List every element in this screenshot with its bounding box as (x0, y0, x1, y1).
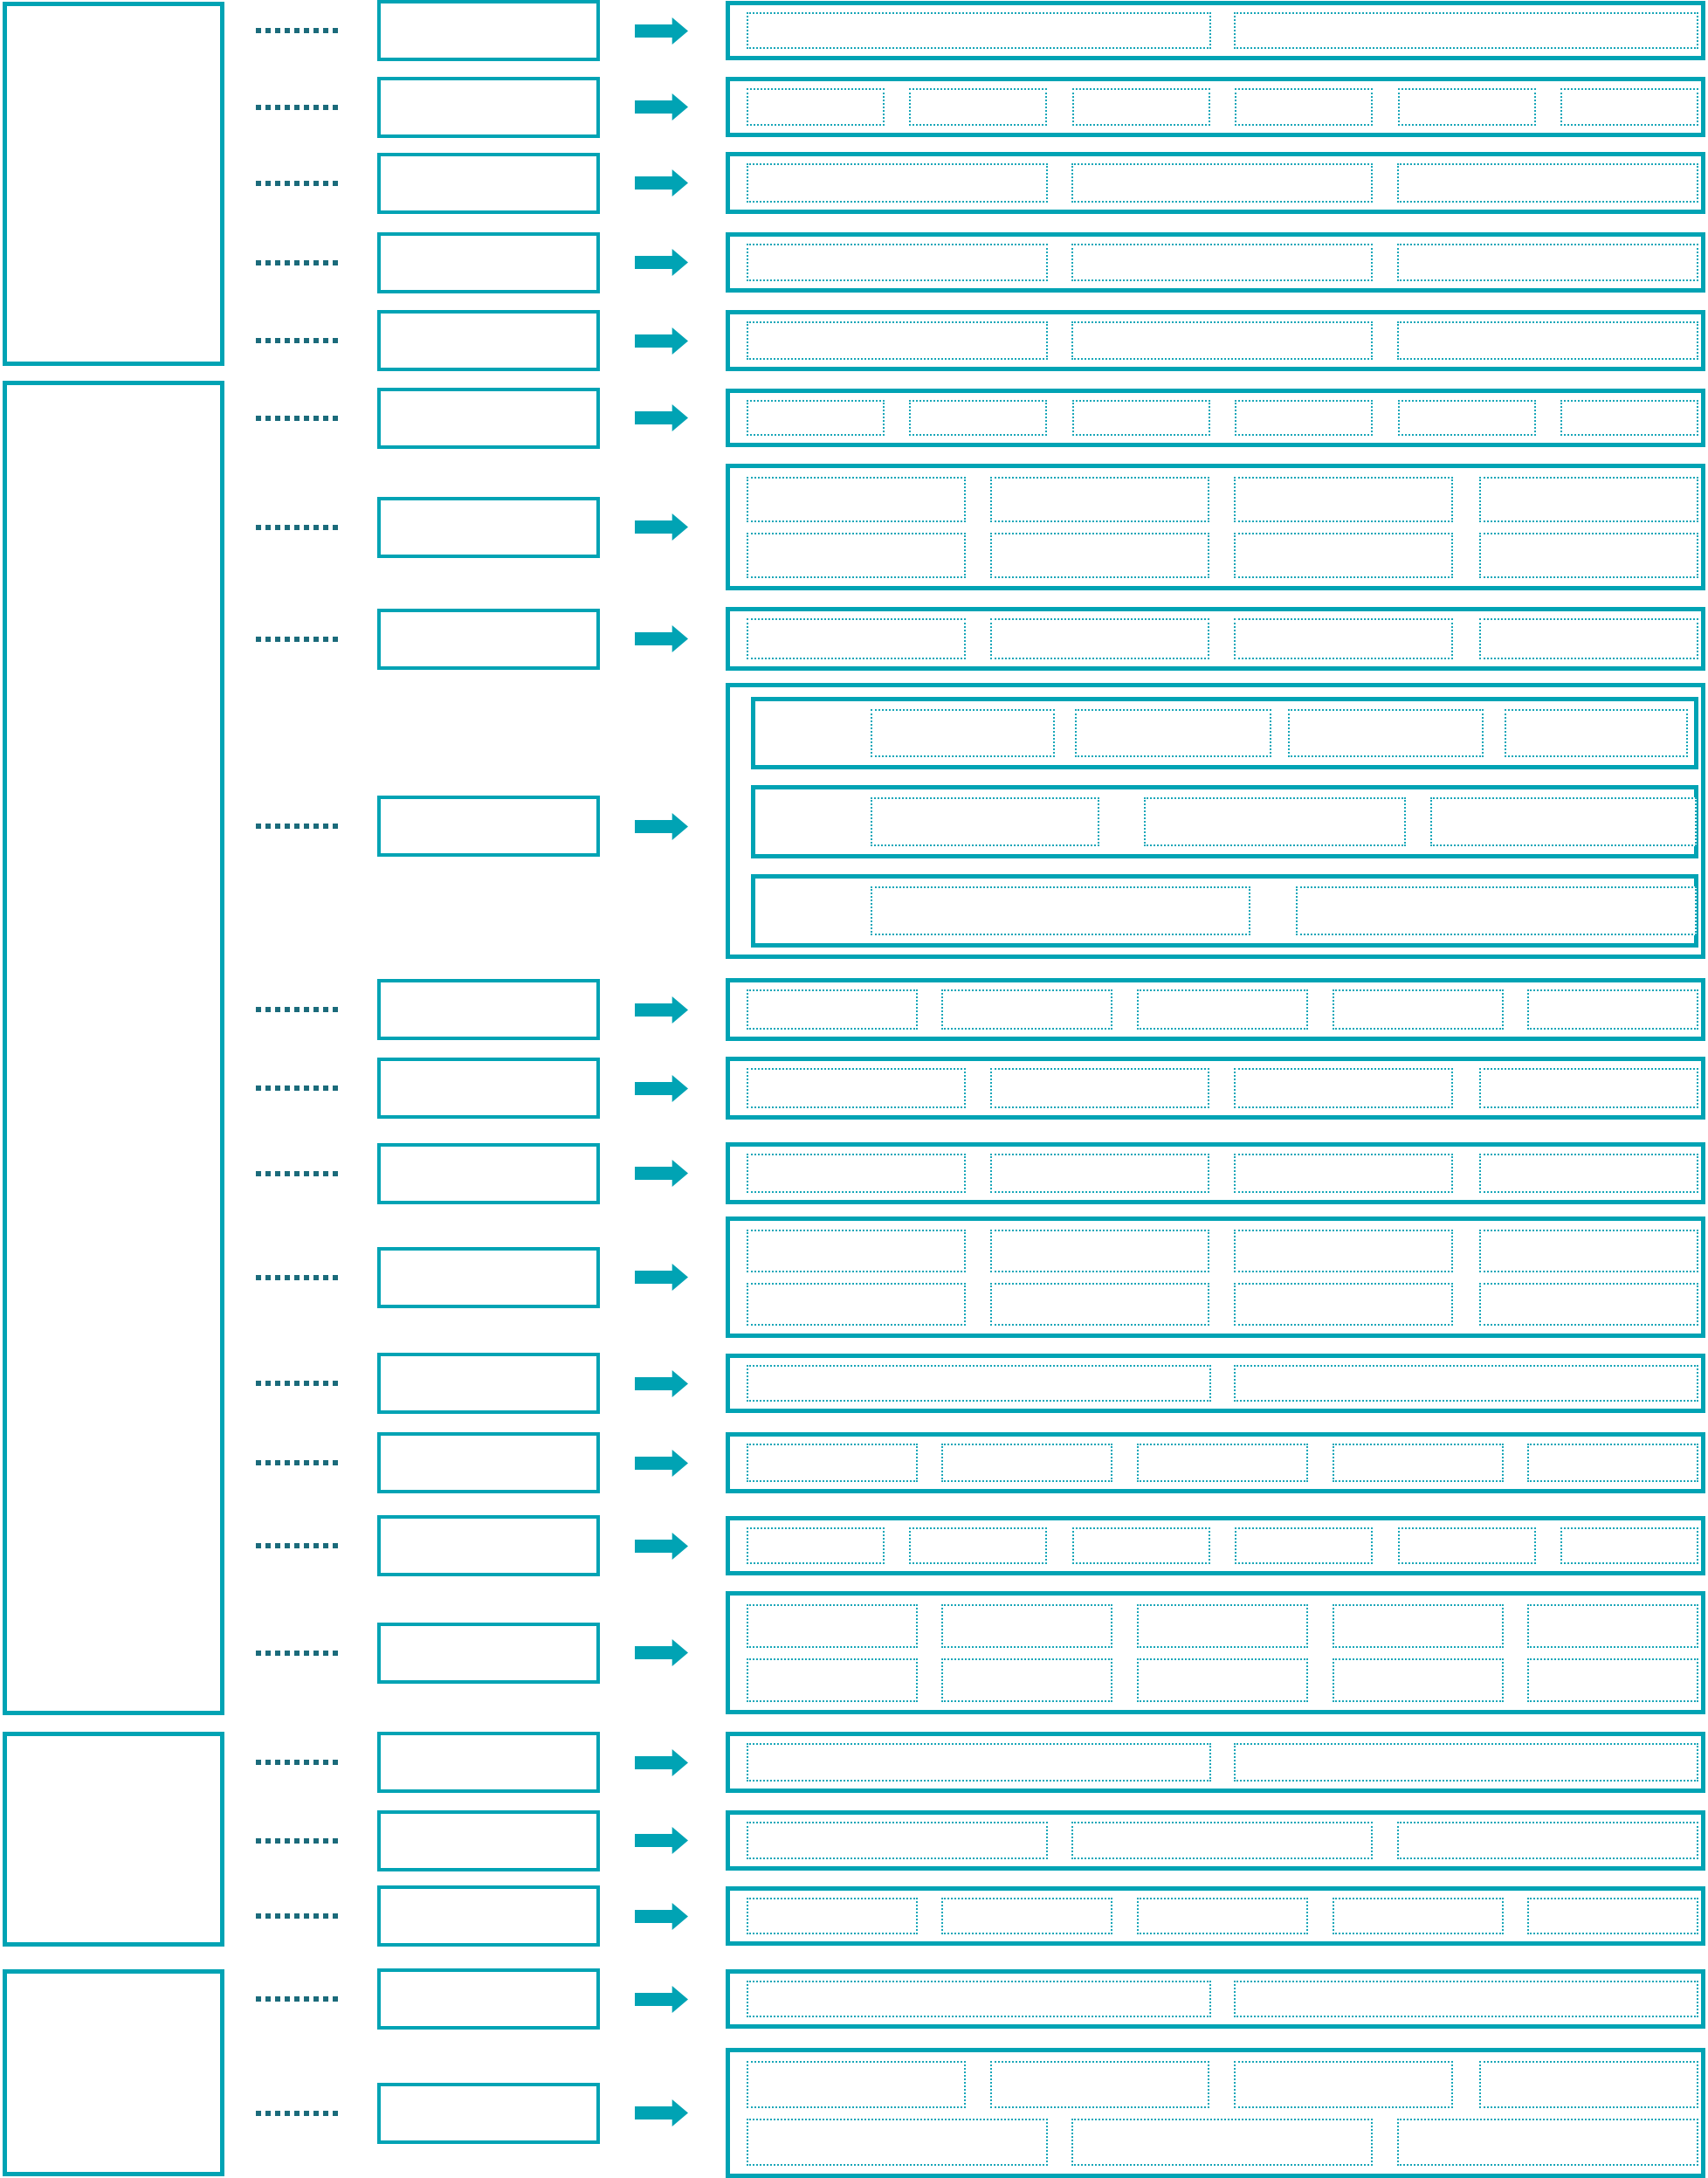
item-placeholder-box (1234, 477, 1453, 522)
arrow-right-icon (635, 1903, 688, 1930)
item-placeholder-box (1479, 1068, 1698, 1108)
dashed-connector (256, 260, 338, 265)
label-box (377, 1432, 600, 1493)
item-placeholder-box (1397, 163, 1698, 203)
dashed-connector (256, 1460, 338, 1465)
item-placeholder-box (1333, 1658, 1504, 1702)
item-placeholder-box (1234, 1283, 1453, 1326)
item-placeholder-box (990, 477, 1209, 522)
label-box (377, 1810, 600, 1871)
item-placeholder-box (990, 533, 1209, 578)
item-placeholder-box (747, 400, 885, 436)
item-placeholder-box (747, 618, 966, 659)
item-placeholder-box (747, 163, 1048, 203)
item-placeholder-box (1479, 533, 1698, 578)
item-placeholder-box (909, 1527, 1047, 1564)
label-box (377, 1247, 600, 1308)
item-placeholder-box (990, 618, 1209, 659)
item-placeholder-box (1071, 1822, 1373, 1859)
arrow-right-icon (635, 169, 688, 196)
item-placeholder-box (1072, 1527, 1210, 1564)
arrow-right-icon (635, 93, 688, 121)
arrow-right-icon (635, 513, 688, 541)
item-placeholder-box (747, 1981, 1211, 2017)
label-box (377, 77, 600, 138)
item-placeholder-box (941, 989, 1112, 1030)
item-placeholder-box (1234, 618, 1453, 659)
left-category-box (3, 1969, 224, 2176)
item-placeholder-box (1234, 1743, 1698, 1782)
item-placeholder-box (1234, 1365, 1698, 1402)
item-placeholder-box (990, 1230, 1209, 1272)
arrow-right-icon (635, 17, 688, 45)
left-category-box (3, 2, 224, 366)
item-placeholder-box (1397, 2119, 1698, 2166)
item-placeholder-box (1234, 1981, 1698, 2017)
item-placeholder-box (1234, 1230, 1453, 1272)
item-placeholder-box (941, 1658, 1112, 1702)
item-placeholder-box (747, 1527, 885, 1564)
arrow-right-icon (635, 1264, 688, 1291)
dashed-connector (256, 1996, 338, 2002)
dashed-connector (256, 181, 338, 186)
arrow-right-icon (635, 1533, 688, 1560)
item-placeholder-box (747, 244, 1048, 281)
label-box (377, 1515, 600, 1576)
item-placeholder-box (747, 1154, 966, 1193)
label-box (377, 1623, 600, 1684)
arrow-right-icon (635, 1370, 688, 1397)
item-placeholder-box (1560, 400, 1698, 436)
item-placeholder-box (871, 886, 1250, 935)
item-placeholder-box (1234, 1068, 1453, 1108)
arrow-right-icon (635, 1986, 688, 2013)
arrow-right-icon (635, 1075, 688, 1102)
item-placeholder-box (1235, 1527, 1373, 1564)
item-placeholder-box (747, 1283, 966, 1326)
item-placeholder-box (1333, 1444, 1504, 1482)
item-placeholder-box (1479, 477, 1698, 522)
item-placeholder-box (1333, 1604, 1504, 1648)
item-placeholder-box (747, 1230, 966, 1272)
label-box (377, 1885, 600, 1947)
item-placeholder-box (1137, 1898, 1308, 1934)
label-box (377, 1732, 600, 1793)
item-placeholder-box (1479, 1283, 1698, 1326)
item-placeholder-box (747, 88, 885, 126)
label-box (377, 310, 600, 371)
item-placeholder-box (747, 477, 966, 522)
item-placeholder-box (1137, 989, 1308, 1030)
item-placeholder-box (747, 533, 966, 578)
item-placeholder-box (747, 989, 918, 1030)
label-box (377, 497, 600, 558)
item-placeholder-box (1137, 1604, 1308, 1648)
dashed-connector (256, 416, 338, 421)
item-placeholder-box (909, 88, 1047, 126)
item-placeholder-box (1479, 618, 1698, 659)
item-placeholder-box (1397, 244, 1698, 281)
item-placeholder-box (1479, 1230, 1698, 1272)
dashed-connector (256, 1760, 338, 1765)
label-box (377, 153, 600, 214)
item-placeholder-box (990, 1154, 1209, 1193)
item-placeholder-box (747, 1743, 1211, 1782)
item-placeholder-box (990, 1068, 1209, 1108)
label-box (377, 609, 600, 670)
item-placeholder-box (1333, 989, 1504, 1030)
label-box (377, 2083, 600, 2144)
item-placeholder-box (1398, 1527, 1536, 1564)
item-placeholder-box (941, 1604, 1112, 1648)
item-placeholder-box (1560, 1527, 1698, 1564)
dashed-connector (256, 1381, 338, 1386)
item-placeholder-box (1234, 12, 1698, 49)
dashed-connector (256, 1171, 338, 1176)
item-placeholder-box (1071, 321, 1373, 360)
item-placeholder-box (909, 400, 1047, 436)
dashed-connector (256, 1007, 338, 1012)
item-placeholder-box (1296, 886, 1697, 935)
dashed-connector (256, 2111, 338, 2116)
item-placeholder-box (1137, 1444, 1308, 1482)
arrow-right-icon (635, 1749, 688, 1776)
item-placeholder-box (747, 1822, 1048, 1859)
item-placeholder-box (1527, 989, 1698, 1030)
label-box (377, 1968, 600, 2030)
item-placeholder-box (990, 2061, 1209, 2108)
item-placeholder-box (1071, 163, 1373, 203)
item-placeholder-box (1397, 1822, 1698, 1859)
item-placeholder-box (1398, 400, 1536, 436)
dashed-connector (256, 637, 338, 642)
item-placeholder-box (1235, 400, 1373, 436)
item-placeholder-box (747, 1068, 966, 1108)
item-placeholder-box (1430, 797, 1697, 846)
item-placeholder-box (1505, 709, 1688, 757)
item-placeholder-box (1235, 88, 1373, 126)
arrow-right-icon (635, 1160, 688, 1187)
dashed-connector (256, 525, 338, 530)
label-box (377, 979, 600, 1040)
arrow-right-icon (635, 996, 688, 1024)
item-placeholder-box (747, 12, 1211, 49)
arrow-right-icon (635, 1827, 688, 1854)
item-placeholder-box (747, 1898, 918, 1934)
diagram-canvas (0, 0, 1708, 2178)
item-placeholder-box (990, 1283, 1209, 1326)
label-box (377, 1353, 600, 1414)
item-placeholder-box (747, 1365, 1211, 1402)
item-placeholder-box (747, 1604, 918, 1648)
item-placeholder-box (1075, 709, 1271, 757)
item-placeholder-box (1137, 1658, 1308, 1702)
item-placeholder-box (747, 2061, 966, 2108)
item-placeholder-box (941, 1898, 1112, 1934)
item-placeholder-box (1234, 2061, 1453, 2108)
arrow-right-icon (635, 404, 688, 431)
item-placeholder-box (1288, 709, 1484, 757)
dashed-connector (256, 1086, 338, 1091)
item-placeholder-box (1144, 797, 1406, 846)
dashed-connector (256, 824, 338, 829)
item-placeholder-box (871, 797, 1099, 846)
item-placeholder-box (1071, 2119, 1373, 2166)
arrow-right-icon (635, 1450, 688, 1477)
item-placeholder-box (1479, 1154, 1698, 1193)
arrow-right-icon (635, 249, 688, 276)
arrow-right-icon (635, 1639, 688, 1666)
left-category-box (3, 381, 224, 1715)
item-placeholder-box (747, 2119, 1048, 2166)
dashed-connector (256, 1651, 338, 1656)
item-placeholder-box (1071, 244, 1373, 281)
item-placeholder-box (1072, 88, 1210, 126)
item-placeholder-box (747, 321, 1048, 360)
arrow-right-icon (635, 813, 688, 840)
dashed-connector (256, 1543, 338, 1548)
dashed-connector (256, 338, 338, 343)
item-placeholder-box (1234, 1154, 1453, 1193)
dashed-connector (256, 28, 338, 33)
dashed-connector (256, 1275, 338, 1280)
dashed-connector (256, 105, 338, 110)
item-placeholder-box (1398, 88, 1536, 126)
item-placeholder-box (941, 1444, 1112, 1482)
item-placeholder-box (747, 1444, 918, 1482)
label-box (377, 388, 600, 449)
item-placeholder-box (871, 709, 1055, 757)
item-placeholder-box (1479, 2061, 1698, 2108)
label-box (377, 796, 600, 857)
item-placeholder-box (1527, 1604, 1698, 1648)
arrow-right-icon (635, 327, 688, 355)
item-placeholder-box (1527, 1658, 1698, 1702)
item-placeholder-box (1560, 88, 1698, 126)
item-placeholder-box (1072, 400, 1210, 436)
dashed-connector (256, 1838, 338, 1844)
item-placeholder-box (1527, 1898, 1698, 1934)
label-box (377, 0, 600, 61)
label-box (377, 1143, 600, 1204)
item-placeholder-box (1333, 1898, 1504, 1934)
item-placeholder-box (1397, 321, 1698, 360)
dashed-connector (256, 1913, 338, 1919)
left-category-box (3, 1732, 224, 1947)
item-placeholder-box (747, 1658, 918, 1702)
label-box (377, 232, 600, 293)
item-placeholder-box (1234, 533, 1453, 578)
item-placeholder-box (1527, 1444, 1698, 1482)
arrow-right-icon (635, 625, 688, 652)
label-box (377, 1058, 600, 1119)
arrow-right-icon (635, 2099, 688, 2126)
